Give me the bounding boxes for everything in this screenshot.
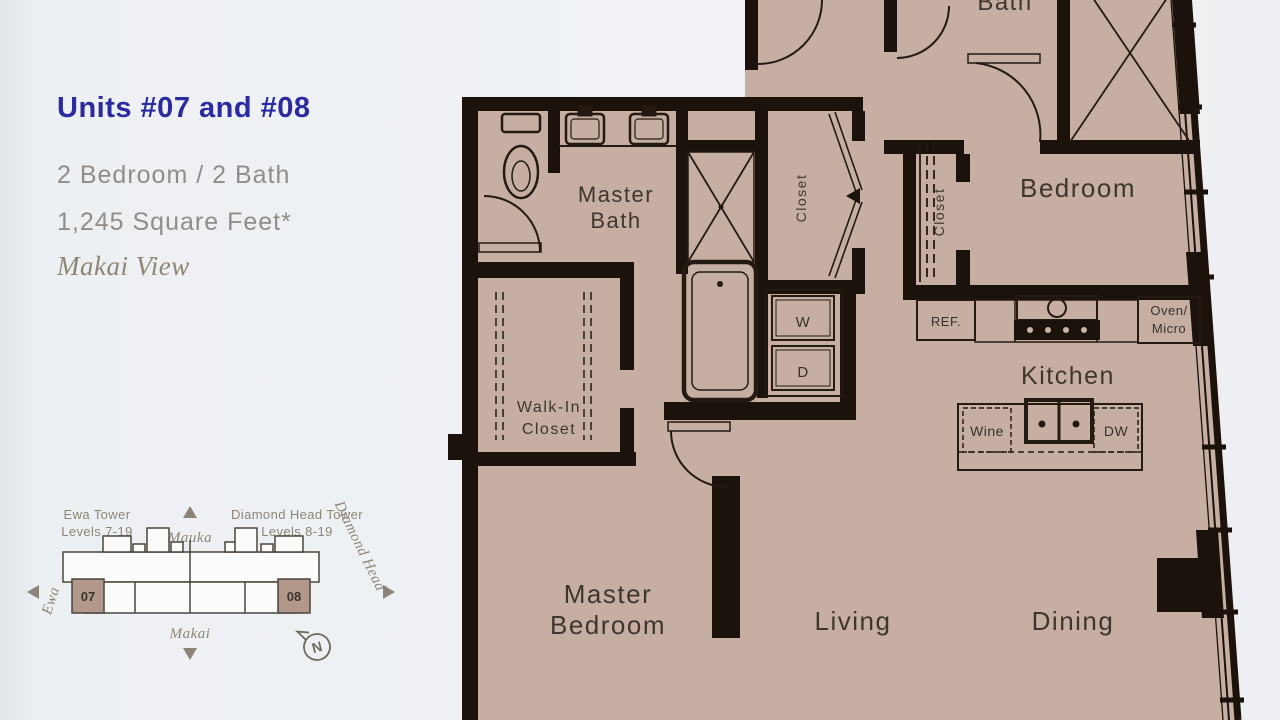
- makai-arrow-icon: [183, 648, 197, 660]
- label-dw: DW: [1104, 423, 1129, 439]
- label-kitchen: Kitchen: [1021, 362, 1115, 390]
- dir-makai: Makai: [169, 626, 211, 642]
- label-master-bath-line1: Master: [578, 182, 654, 207]
- left-tower-name: Ewa Tower: [64, 507, 131, 522]
- dir-ewa: Ewa: [39, 585, 63, 618]
- label-dining: Dining: [1032, 606, 1115, 636]
- label-bedroom-closet: Closet: [931, 188, 947, 237]
- tower-locator-diagram: Ewa Tower Levels 7-19 Diamond Head Tower…: [25, 500, 415, 690]
- unit-08-label: 08: [287, 589, 301, 604]
- label-oven-line2: Micro: [1152, 321, 1186, 336]
- label-bath2: Bath: [977, 0, 1032, 16]
- label-master-bath-line2: Bath: [590, 208, 641, 233]
- label-oven-line1: Oven/: [1150, 303, 1187, 318]
- north-compass-icon: N: [297, 624, 333, 663]
- floorplan-page: Units #07 and #08 2 Bedroom / 2 Bath 1,2…: [0, 0, 1280, 720]
- ewa-arrow-icon: [27, 585, 39, 599]
- label-wine: Wine: [970, 423, 1004, 439]
- label-walkin-line2: Closet: [522, 421, 576, 438]
- label-master-bedroom-line2: Bedroom: [550, 610, 666, 640]
- label-walkin-line1: Walk-In: [517, 399, 581, 416]
- label-bedroom: Bedroom: [1020, 173, 1136, 203]
- label-master-bedroom-line1: Master: [564, 579, 652, 609]
- compass-n-label: N: [310, 638, 324, 656]
- label-dryer: D: [797, 364, 808, 381]
- label-living: Living: [815, 606, 892, 636]
- unit-07-label: 07: [81, 589, 95, 604]
- label-hall-closet: Closet: [793, 174, 809, 223]
- mauka-arrow-icon: [183, 506, 197, 518]
- label-ref: REF.: [931, 314, 961, 329]
- label-washer: W: [796, 314, 811, 331]
